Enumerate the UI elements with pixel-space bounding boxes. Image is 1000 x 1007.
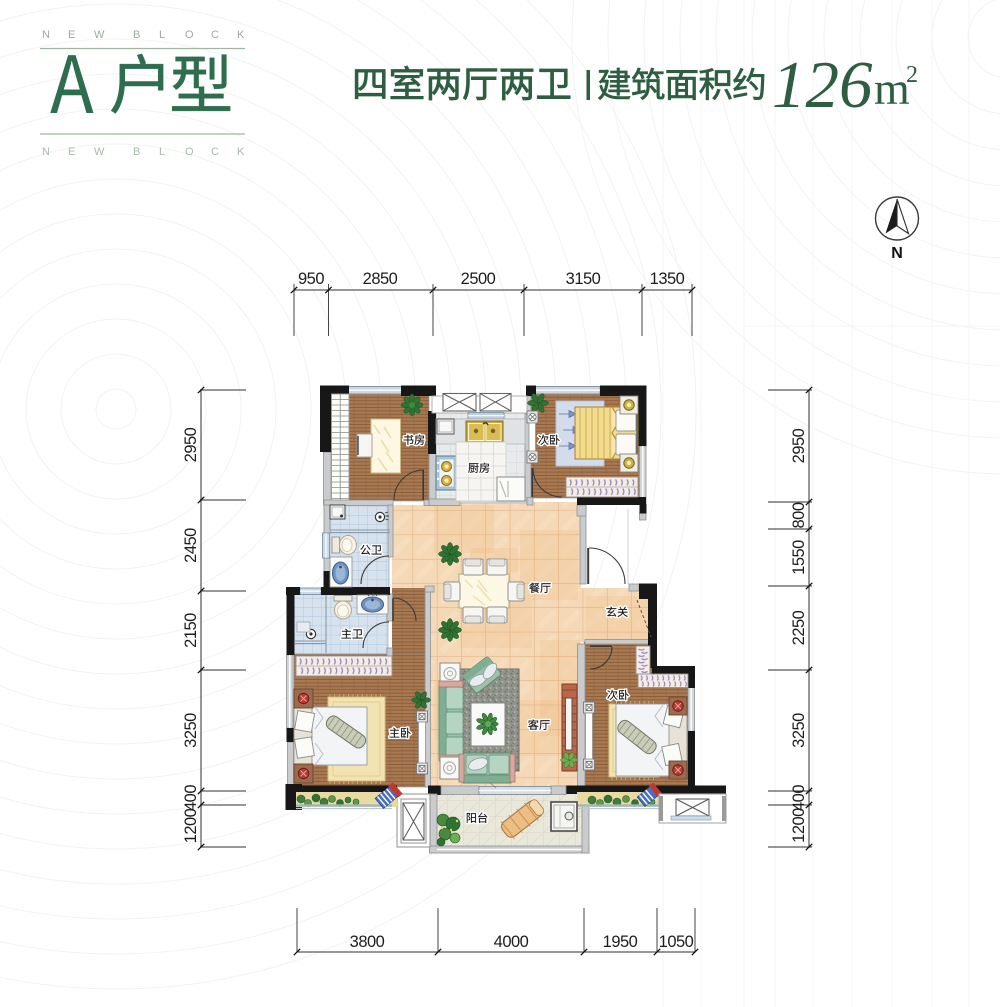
svg-text:N: N bbox=[891, 245, 903, 262]
svg-text:2150: 2150 bbox=[182, 613, 200, 648]
svg-text:O: O bbox=[185, 29, 194, 41]
svg-text:3250: 3250 bbox=[182, 713, 200, 748]
svg-text:m: m bbox=[874, 63, 910, 114]
svg-text:1350: 1350 bbox=[650, 270, 685, 288]
svg-text:400: 400 bbox=[182, 785, 200, 811]
svg-text:B: B bbox=[133, 146, 140, 158]
svg-text:E: E bbox=[68, 29, 75, 41]
svg-text:1950: 1950 bbox=[603, 933, 638, 951]
svg-text:N: N bbox=[42, 29, 50, 41]
svg-text:1550: 1550 bbox=[790, 540, 808, 575]
svg-text:K: K bbox=[237, 29, 245, 41]
svg-text:K: K bbox=[237, 146, 245, 158]
svg-text:3150: 3150 bbox=[566, 270, 601, 288]
svg-text:4000: 4000 bbox=[494, 933, 529, 951]
svg-text:1200: 1200 bbox=[790, 808, 808, 843]
svg-text:W: W bbox=[94, 29, 105, 41]
svg-text:1050: 1050 bbox=[659, 933, 694, 951]
svg-text:2950: 2950 bbox=[790, 428, 808, 463]
svg-text:2450: 2450 bbox=[182, 528, 200, 563]
svg-text:O: O bbox=[185, 146, 194, 158]
svg-text:E: E bbox=[68, 146, 75, 158]
svg-text:2250: 2250 bbox=[790, 610, 808, 645]
svg-text:C: C bbox=[211, 29, 219, 41]
svg-text:1200: 1200 bbox=[182, 808, 200, 843]
svg-text:L: L bbox=[159, 29, 165, 41]
svg-text:3800: 3800 bbox=[350, 933, 385, 951]
svg-text:L: L bbox=[159, 146, 165, 158]
svg-text:C: C bbox=[211, 146, 219, 158]
svg-text:800: 800 bbox=[790, 502, 808, 528]
svg-text:950: 950 bbox=[298, 270, 324, 288]
svg-text:2850: 2850 bbox=[363, 270, 398, 288]
svg-text:W: W bbox=[94, 146, 105, 158]
svg-text:2: 2 bbox=[906, 62, 918, 88]
svg-text:2950: 2950 bbox=[182, 427, 200, 462]
svg-text:B: B bbox=[133, 29, 140, 41]
svg-text:N: N bbox=[42, 146, 50, 158]
svg-text:2500: 2500 bbox=[461, 270, 496, 288]
svg-text:3250: 3250 bbox=[790, 713, 808, 748]
svg-text:126: 126 bbox=[772, 48, 873, 122]
svg-text:400: 400 bbox=[790, 785, 808, 811]
